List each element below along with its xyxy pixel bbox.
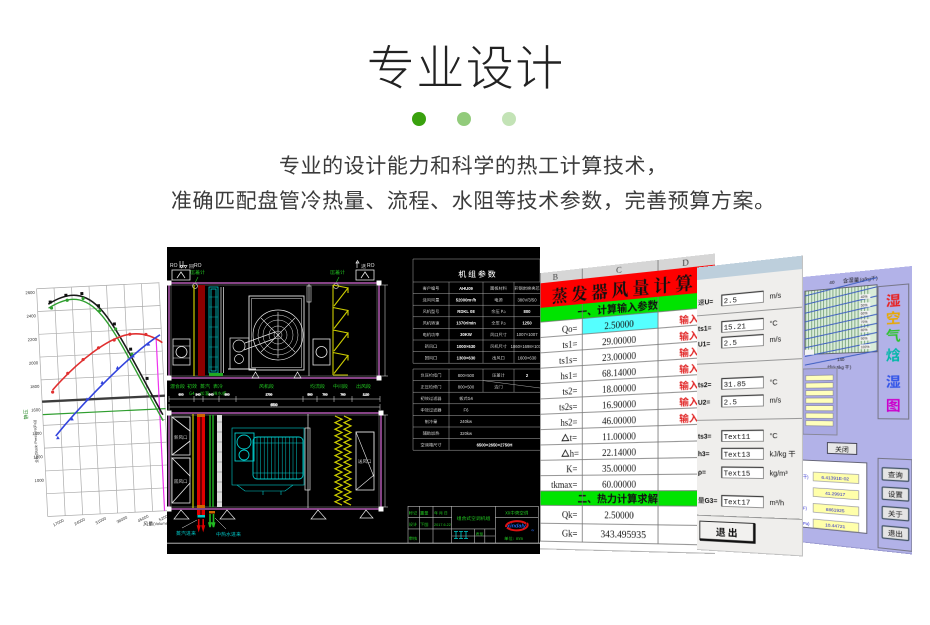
svg-text:60.00000: 60.00000 <box>602 479 636 490</box>
svg-text:80%: 80% <box>861 328 869 332</box>
svg-text:2.50000: 2.50000 <box>604 318 634 331</box>
svg-text:1860×1698×1076: 1860×1698×1076 <box>511 344 540 349</box>
svg-text:°C: °C <box>770 320 778 328</box>
svg-text:1600×630: 1600×630 <box>518 355 537 360</box>
svg-text:m/s: m/s <box>770 397 782 405</box>
svg-text:6500×2650×2750H: 6500×2650×2750H <box>477 442 513 447</box>
svg-text:11.00000: 11.00000 <box>602 431 636 443</box>
svg-text:F6: F6 <box>464 408 470 413</box>
svg-text:tkmax=: tkmax= <box>551 479 578 490</box>
svg-text:h3=: h3= <box>698 451 710 458</box>
svg-text:340: 340 <box>195 393 200 397</box>
svg-text:xindaly: xindaly <box>506 524 527 530</box>
svg-text:50%: 50% <box>861 303 869 308</box>
svg-text:60%: 60% <box>861 312 869 317</box>
svg-text:°C: °C <box>770 379 778 387</box>
svg-text:U=: U= <box>705 299 715 307</box>
svg-text:22.14000: 22.14000 <box>602 447 636 459</box>
svg-text:Gk=: Gk= <box>562 528 578 539</box>
svg-text:ts2=: ts2= <box>562 386 578 398</box>
svg-text:t=: t= <box>570 433 578 444</box>
svg-text:15.21: 15.21 <box>724 322 747 332</box>
svg-text:46.00000: 46.00000 <box>602 415 636 427</box>
svg-text:1370r/min: 1370r/min <box>456 321 476 326</box>
svg-text:2000: 2000 <box>29 360 39 365</box>
svg-text:560: 560 <box>307 393 312 397</box>
svg-text:30KW: 30KW <box>460 332 472 337</box>
svg-text:52000m³/h: 52000m³/h <box>456 297 477 302</box>
svg-text:140: 140 <box>837 357 844 363</box>
svg-text:°C: °C <box>770 433 778 441</box>
svg-text:6500: 6500 <box>270 403 277 407</box>
svg-text:RO: RO <box>367 263 375 269</box>
svg-text:90%: 90% <box>861 337 869 341</box>
svg-text:100%: 100% <box>861 345 871 349</box>
svg-text:Text17: Text17 <box>724 498 751 507</box>
svg-text:Qo=: Qo= <box>562 323 578 335</box>
svg-text:dy: dy <box>531 528 535 532</box>
svg-text:ρ=: ρ= <box>698 470 707 477</box>
svg-text:AHU09: AHU09 <box>459 286 473 291</box>
svg-text:18.00000: 18.00000 <box>602 382 636 395</box>
svg-text:Pa): Pa) <box>803 521 809 527</box>
svg-text:): ) <box>850 365 851 370</box>
svg-text:1120: 1120 <box>363 393 370 397</box>
svg-text:ts2=: ts2= <box>698 382 712 390</box>
svg-text:1300×630: 1300×630 <box>457 355 476 360</box>
svg-text:RO: RO <box>194 263 202 269</box>
svg-text:m/s: m/s <box>770 336 782 344</box>
svg-text:Text13: Text13 <box>724 451 751 460</box>
svg-text:680: 680 <box>224 393 229 397</box>
svg-text:700: 700 <box>322 393 327 397</box>
svg-text:1000: 1000 <box>34 478 44 483</box>
svg-text:m/s: m/s <box>770 293 782 302</box>
svg-text:2.5: 2.5 <box>724 296 738 306</box>
svg-text:800×500: 800×500 <box>458 384 475 389</box>
svg-text:760: 760 <box>340 393 345 397</box>
svg-text:kJ/kg: kJ/kg <box>770 451 787 459</box>
svg-text:45000: 45000 <box>137 513 150 523</box>
svg-text:24000: 24000 <box>73 516 86 526</box>
svg-text:31000: 31000 <box>94 515 107 525</box>
svg-text:D: D <box>682 256 689 268</box>
svg-text:31.85: 31.85 <box>724 380 747 390</box>
svg-text:mm: mm <box>516 536 523 541</box>
svg-text:35.00000: 35.00000 <box>602 463 636 474</box>
svg-text:ts2s=: ts2s= <box>559 401 578 413</box>
svg-text:m³/h: m³/h <box>770 500 784 508</box>
svg-text:23.00000: 23.00000 <box>602 350 636 363</box>
svg-text:380V/3/50: 380V/3/50 <box>517 297 537 302</box>
svg-text:kg/m³: kg/m³ <box>770 471 788 479</box>
svg-text:70%: 70% <box>861 320 869 325</box>
svg-text:2200: 2200 <box>28 337 38 342</box>
svg-text:600: 600 <box>178 393 183 397</box>
svg-text:2.50000: 2.50000 <box>604 510 634 521</box>
svg-text:2600: 2600 <box>25 290 35 295</box>
svg-text:B: B <box>553 271 558 282</box>
svg-text:hs1=: hs1= <box>561 370 579 382</box>
svg-text:2.5: 2.5 <box>724 339 738 348</box>
svg-text:Text15: Text15 <box>724 469 751 478</box>
svg-text:38000: 38000 <box>116 514 129 524</box>
svg-text:2017.6.22: 2017.6.22 <box>434 523 451 527</box>
svg-text:ts1=: ts1= <box>562 339 578 351</box>
svg-text:干): 干) <box>803 474 809 479</box>
svg-text:320kw: 320kw <box>460 431 473 436</box>
svg-text:17000: 17000 <box>52 517 65 527</box>
svg-text:800: 800 <box>524 309 532 314</box>
svg-text:1007×1007: 1007×1007 <box>516 332 538 337</box>
svg-text:800×500: 800×500 <box>458 373 475 378</box>
svg-text:1800: 1800 <box>30 384 40 389</box>
svg-text:1000×630: 1000×630 <box>457 344 476 349</box>
svg-text:Qk=: Qk= <box>562 510 578 521</box>
svg-text:U1=: U1= <box>698 341 711 349</box>
svg-text:40%: 40% <box>861 295 869 300</box>
svg-text:h=: h= <box>570 448 580 459</box>
svg-text:240kw: 240kw <box>460 419 473 424</box>
svg-text:68.14000: 68.14000 <box>602 366 636 379</box>
svg-text:ts1=: ts1= <box>698 325 712 333</box>
svg-text:K=: K= <box>566 464 578 475</box>
svg-text:40: 40 <box>829 280 834 286</box>
svg-text:U2=: U2= <box>698 400 711 408</box>
svg-text:16.90000: 16.90000 <box>602 399 636 411</box>
svg-text:343.495935: 343.495935 <box>600 529 646 541</box>
svg-text:RDKL 08: RDKL 08 <box>457 309 475 314</box>
svg-text:F): F) <box>803 505 807 510</box>
svg-text:C: C <box>616 264 622 276</box>
svg-text:640: 640 <box>208 393 213 397</box>
svg-text:ts1s=: ts1s= <box>559 354 578 366</box>
svg-text:1250: 1250 <box>522 321 532 326</box>
svg-text:ts3=: ts3= <box>698 434 712 441</box>
svg-text:RO: RO <box>170 263 178 269</box>
svg-text:hs2=: hs2= <box>561 417 579 428</box>
svg-text:2400: 2400 <box>26 313 36 318</box>
svg-text:2700: 2700 <box>266 393 273 397</box>
svg-text:1600: 1600 <box>31 407 41 412</box>
svg-text:2.5: 2.5 <box>724 398 738 407</box>
svg-text:G3=: G3= <box>705 498 719 506</box>
svg-text:Text11: Text11 <box>724 433 751 442</box>
